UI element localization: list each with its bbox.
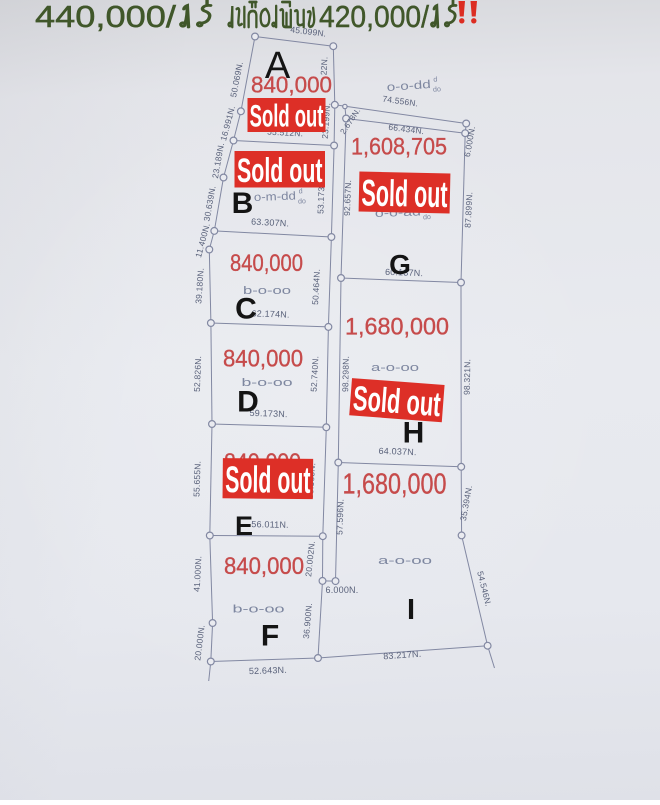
svg-text:20.002N.: 20.002N. xyxy=(303,540,317,577)
svg-text:Sold out: Sold out xyxy=(352,380,443,424)
svg-text:o-o-dd: o-o-dd xyxy=(386,79,431,94)
svg-text:50.069N.: 50.069N. xyxy=(228,61,245,98)
svg-text:39.180N.: 39.180N. xyxy=(193,267,205,304)
svg-text:52.740N.: 52.740N. xyxy=(309,356,321,393)
svg-text:1,680,000: 1,680,000 xyxy=(345,314,449,341)
svg-text:56.011N.: 56.011N. xyxy=(251,519,289,530)
svg-text:98.298N.: 98.298N. xyxy=(340,356,351,392)
svg-text:50.464N.: 50.464N. xyxy=(310,269,322,306)
svg-text:1,608,705: 1,608,705 xyxy=(351,134,447,161)
svg-text:do: do xyxy=(298,197,306,205)
svg-text:41.000N.: 41.000N. xyxy=(192,556,204,593)
svg-text:92.657N.: 92.657N. xyxy=(342,180,353,216)
svg-text:C: C xyxy=(235,293,257,326)
svg-text:G: G xyxy=(389,249,411,280)
svg-text:Sold out: Sold out xyxy=(237,152,323,190)
svg-text:36.900N.: 36.900N. xyxy=(301,602,314,639)
svg-text:F: F xyxy=(261,620,279,653)
svg-text:83.217N.: 83.217N. xyxy=(383,649,422,662)
svg-text:440,000/: 440,000/ xyxy=(35,0,177,34)
svg-text:20.000N.: 20.000N. xyxy=(192,624,206,661)
svg-text:52.643N.: 52.643N. xyxy=(249,665,287,676)
svg-text:35.394N.: 35.394N. xyxy=(458,484,474,521)
svg-text:52.826N.: 52.826N. xyxy=(192,356,203,392)
svg-text:Sold out: Sold out xyxy=(361,171,448,215)
svg-text:I: I xyxy=(407,594,415,626)
svg-text:1,680,000: 1,680,000 xyxy=(343,469,447,501)
svg-text:840,000: 840,000 xyxy=(224,553,304,580)
svg-text:420,000/: 420,000/ xyxy=(319,0,429,34)
svg-text:54.546N.: 54.546N. xyxy=(475,570,493,607)
svg-text:62.174N.: 62.174N. xyxy=(251,308,289,319)
svg-text:87.899N.: 87.899N. xyxy=(463,192,475,229)
svg-text:D: D xyxy=(237,386,259,419)
svg-text:57.596N.: 57.596N. xyxy=(334,499,345,535)
svg-text:6.000N.: 6.000N. xyxy=(326,585,359,595)
svg-text:d: d xyxy=(433,75,438,83)
svg-text:2.678N.: 2.678N. xyxy=(338,106,362,135)
svg-text:a-o-oo: a-o-oo xyxy=(371,362,419,374)
svg-text:840,000: 840,000 xyxy=(223,346,303,373)
svg-text:o-m-dd: o-m-dd xyxy=(254,191,296,204)
svg-text:30.639N.: 30.639N. xyxy=(201,185,217,222)
svg-text:Sold out: Sold out xyxy=(250,98,324,134)
svg-text:b-o-oo: b-o-oo xyxy=(233,604,285,616)
svg-text:B: B xyxy=(232,187,254,220)
svg-text:98.321N.: 98.321N. xyxy=(462,359,473,395)
svg-text:H: H xyxy=(403,417,425,450)
svg-text:840,000: 840,000 xyxy=(251,72,332,98)
svg-text:A: A xyxy=(265,45,291,87)
svg-text:55.655N.: 55.655N. xyxy=(191,461,202,497)
svg-text:840,000: 840,000 xyxy=(230,250,303,277)
svg-text:do: do xyxy=(433,85,441,94)
svg-text:74.556N.: 74.556N. xyxy=(382,94,419,109)
svg-text:a-o-oo: a-o-oo xyxy=(378,555,432,567)
svg-text:Sold out: Sold out xyxy=(225,458,311,501)
svg-text:63.307N.: 63.307N. xyxy=(251,217,290,229)
svg-text:E: E xyxy=(235,511,253,541)
